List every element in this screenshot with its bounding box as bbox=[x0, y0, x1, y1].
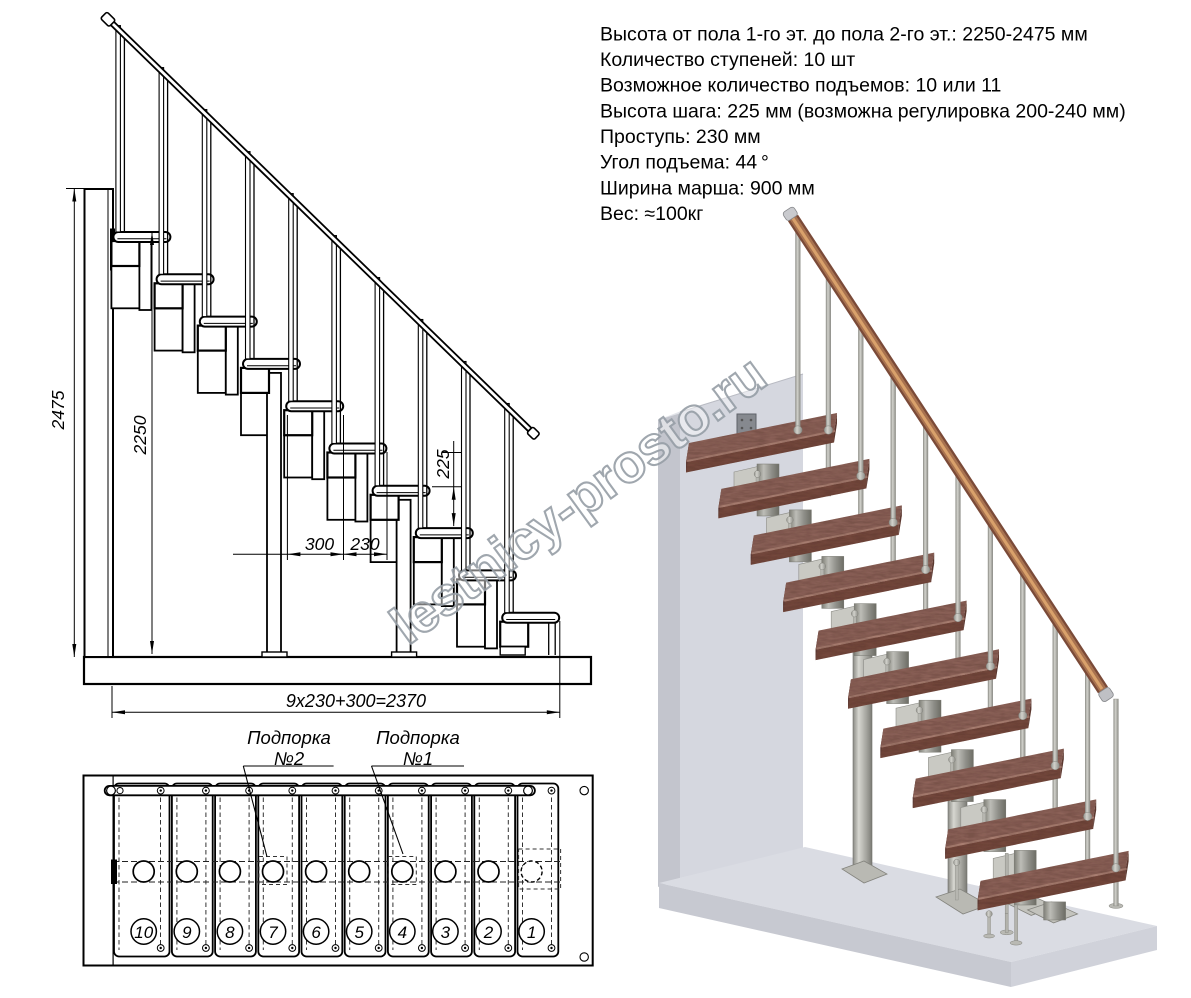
svg-text:Проступь: 230 мм: Проступь: 230 мм bbox=[600, 126, 761, 148]
svg-text:Подпорка: Подпорка bbox=[376, 727, 460, 748]
svg-text:3: 3 bbox=[441, 923, 451, 942]
svg-text:5: 5 bbox=[354, 923, 364, 942]
svg-text:2475: 2475 bbox=[48, 390, 68, 430]
svg-text:6: 6 bbox=[311, 923, 321, 942]
svg-text:4: 4 bbox=[398, 923, 407, 942]
svg-text:2250: 2250 bbox=[130, 415, 150, 455]
svg-text:10: 10 bbox=[134, 923, 153, 942]
svg-text:9x230+300=2370: 9x230+300=2370 bbox=[286, 691, 426, 711]
svg-text:Угол подъема: 44 °: Угол подъема: 44 ° bbox=[600, 152, 769, 174]
svg-text:Ширина марша: 900 мм: Ширина марша: 900 мм bbox=[600, 177, 815, 199]
svg-text:225: 225 bbox=[433, 449, 453, 479]
svg-text:2: 2 bbox=[483, 923, 494, 942]
svg-text:Вес: ≈100кг: Вес: ≈100кг bbox=[600, 203, 703, 225]
svg-text:Подпорка: Подпорка bbox=[247, 727, 331, 748]
svg-text:Высота от пола 1-го эт. до пол: Высота от пола 1-го эт. до пола 2-го эт.… bbox=[600, 23, 1088, 45]
svg-text:1: 1 bbox=[527, 923, 536, 942]
svg-text:8: 8 bbox=[225, 923, 235, 942]
svg-text:Количество ступеней: 10 шт: Количество ступеней: 10 шт bbox=[600, 49, 855, 71]
svg-text:Высота шага: 225 мм (возможна: Высота шага: 225 мм (возможна регулировк… bbox=[600, 100, 1126, 122]
svg-text:300: 300 bbox=[305, 534, 334, 554]
svg-text:9: 9 bbox=[182, 923, 192, 942]
svg-text:Возможное количество подъемов:: Возможное количество подъемов: 10 или 11 bbox=[600, 75, 1001, 97]
svg-text:7: 7 bbox=[268, 923, 278, 942]
svg-text:230: 230 bbox=[349, 534, 379, 554]
